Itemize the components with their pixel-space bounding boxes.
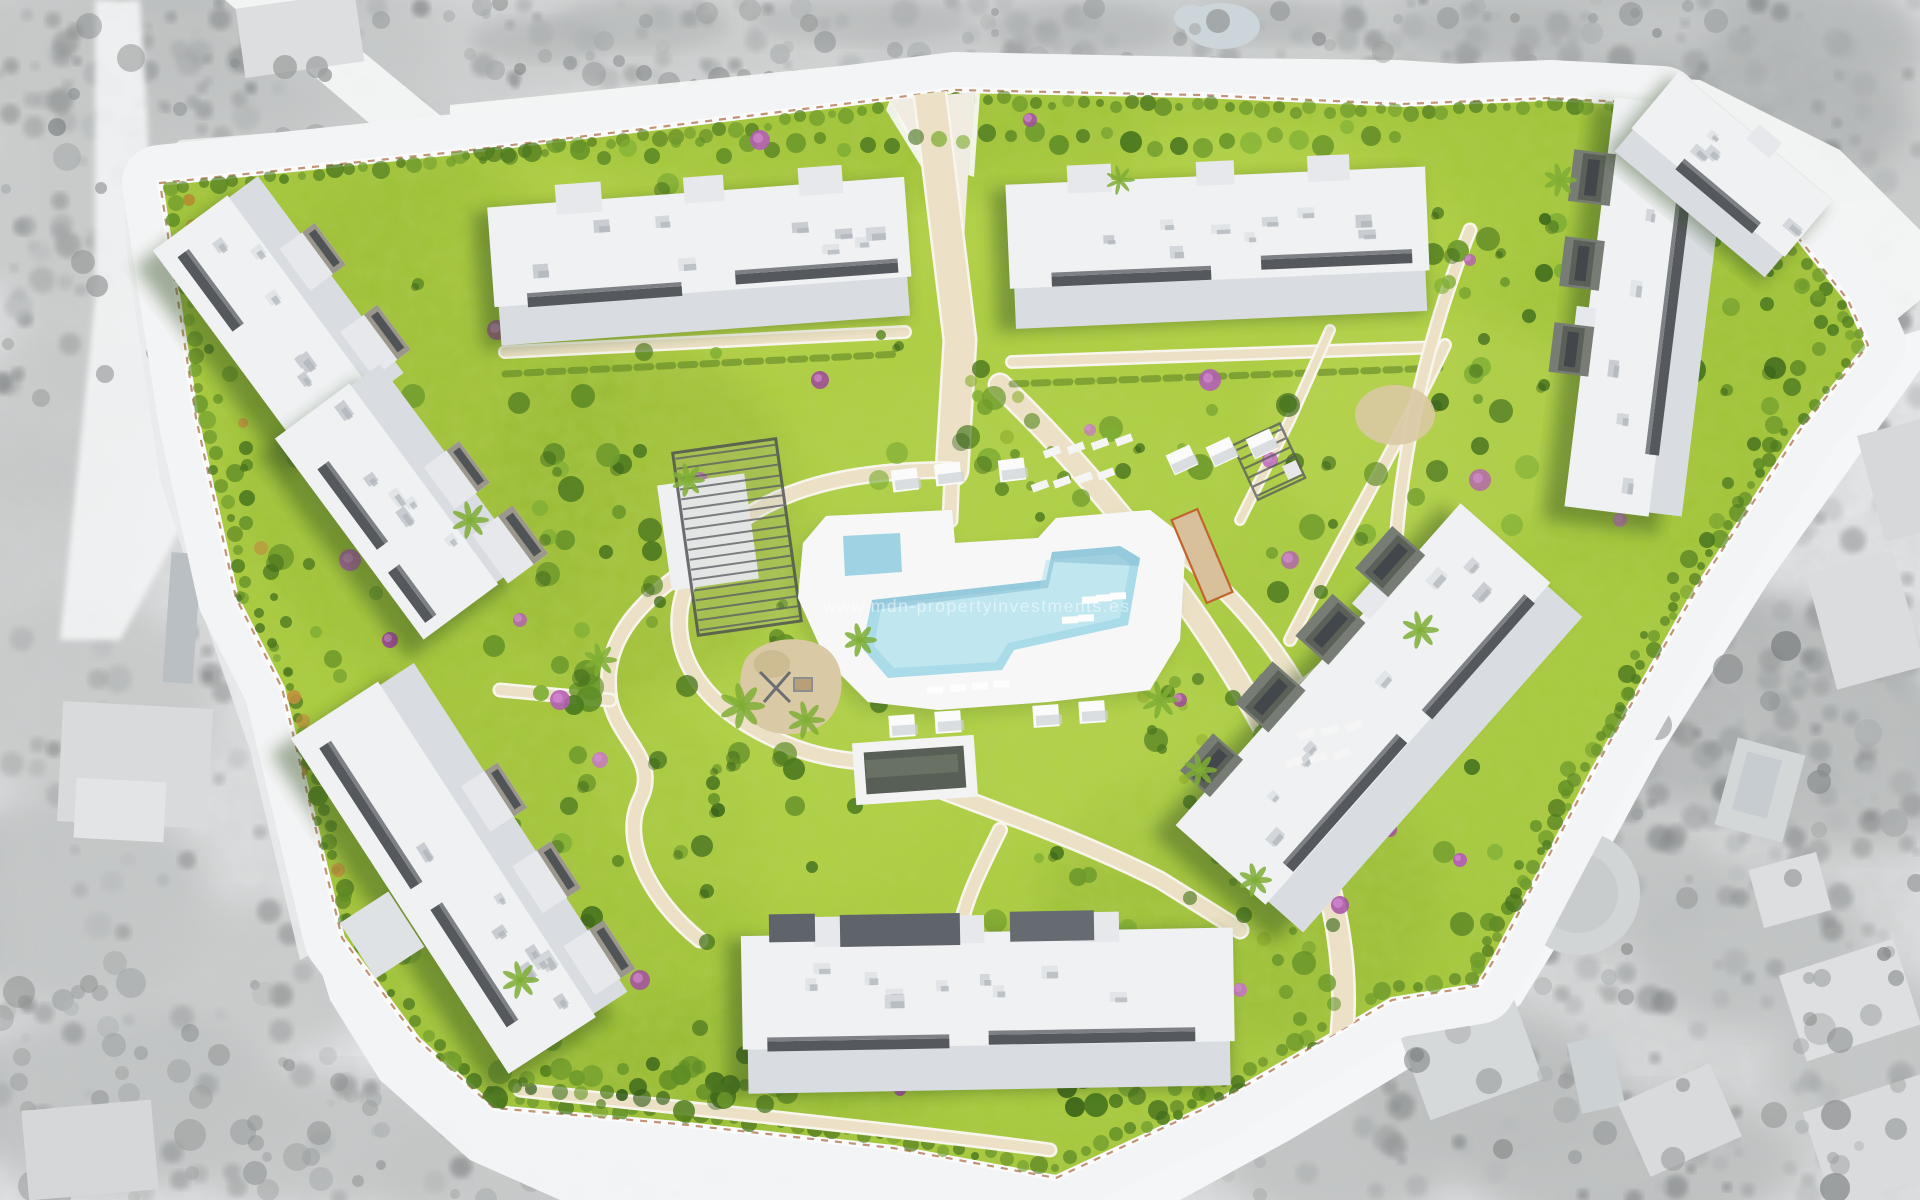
svg-text:www.mdn-propertyinvestments.es: www.mdn-propertyinvestments.es [822,596,1131,616]
